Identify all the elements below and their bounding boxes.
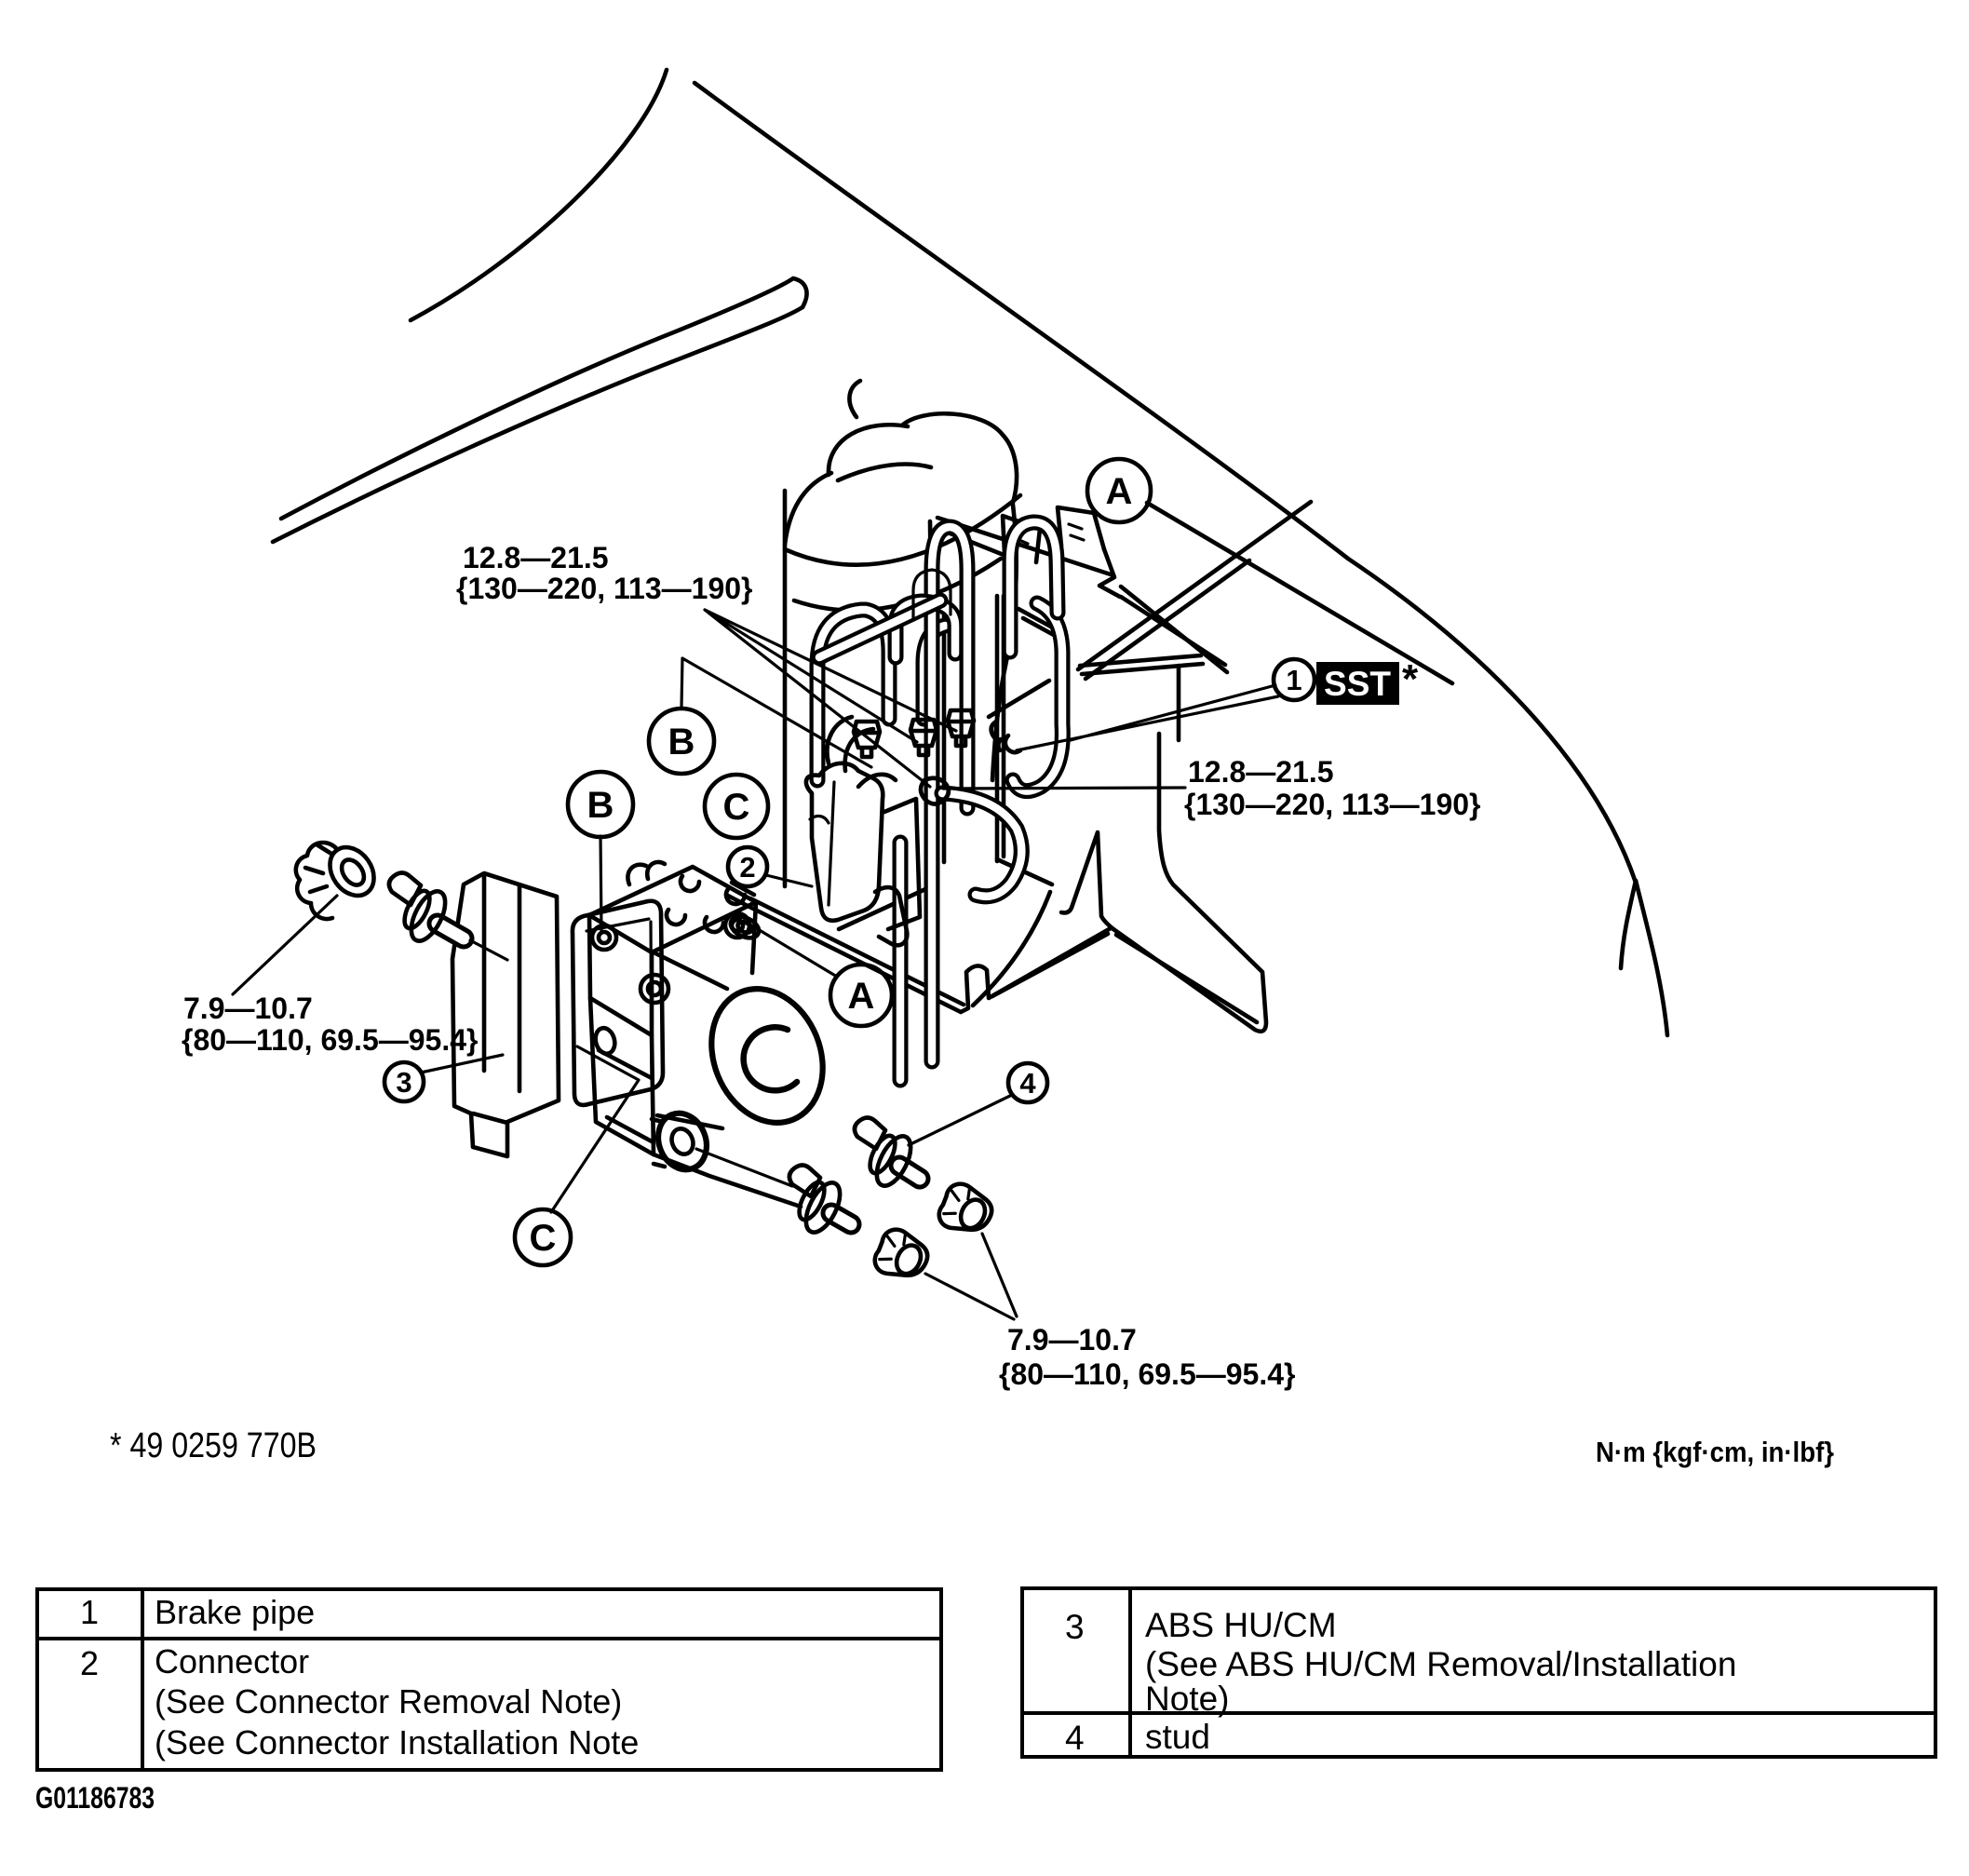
svg-text:1: 1 xyxy=(1286,664,1301,696)
svg-text:(See ABS HU/CM Removal/Install: (See ABS HU/CM Removal/Installation xyxy=(1145,1645,1736,1683)
svg-text:3: 3 xyxy=(396,1066,411,1099)
svg-text:SST: SST xyxy=(1324,665,1391,703)
svg-text:3: 3 xyxy=(1065,1608,1085,1646)
svg-text:12.8—21.5: 12.8—21.5 xyxy=(463,541,609,574)
svg-text:1: 1 xyxy=(80,1593,99,1631)
svg-text:4: 4 xyxy=(1065,1719,1085,1757)
svg-text:2: 2 xyxy=(739,851,755,884)
svg-text:{130—220, 113—190}: {130—220, 113—190} xyxy=(456,572,752,605)
svg-text:Connector: Connector xyxy=(155,1642,309,1680)
svg-text:C: C xyxy=(530,1218,557,1259)
svg-text:7.9—10.7: 7.9—10.7 xyxy=(183,992,313,1025)
svg-text:Note): Note) xyxy=(1145,1680,1229,1718)
svg-text:{130—220, 113—190}: {130—220, 113—190} xyxy=(1184,788,1480,821)
svg-text:* 49 0259 770B: * 49 0259 770B xyxy=(110,1426,317,1465)
svg-text:(See Connector Installation No: (See Connector Installation Note xyxy=(155,1723,639,1761)
svg-text:N·m {kgf·cm, in·lbf}: N·m {kgf·cm, in·lbf} xyxy=(1596,1436,1834,1468)
svg-text:(See Connector Removal Note): (See Connector Removal Note) xyxy=(155,1682,622,1721)
svg-text:*: * xyxy=(1402,656,1419,702)
svg-text:7.9—10.7: 7.9—10.7 xyxy=(1007,1323,1137,1356)
svg-text:4: 4 xyxy=(1019,1067,1036,1100)
svg-text:{80—110, 69.5—95.4}: {80—110, 69.5—95.4} xyxy=(999,1357,1295,1391)
svg-text:B: B xyxy=(668,722,695,763)
svg-text:2: 2 xyxy=(80,1644,99,1682)
svg-text:G01186783: G01186783 xyxy=(35,1781,155,1815)
svg-text:{80—110, 69.5—95.4}: {80—110, 69.5—95.4} xyxy=(182,1023,478,1057)
svg-text:C: C xyxy=(723,787,750,828)
svg-text:A: A xyxy=(848,976,875,1017)
svg-text:B: B xyxy=(587,785,614,826)
svg-text:ABS HU/CM: ABS HU/CM xyxy=(1145,1606,1337,1644)
svg-text:stud: stud xyxy=(1145,1718,1210,1756)
svg-text:A: A xyxy=(1106,471,1133,512)
svg-text:Brake pipe: Brake pipe xyxy=(155,1593,315,1631)
svg-text:12.8—21.5: 12.8—21.5 xyxy=(1188,755,1334,789)
